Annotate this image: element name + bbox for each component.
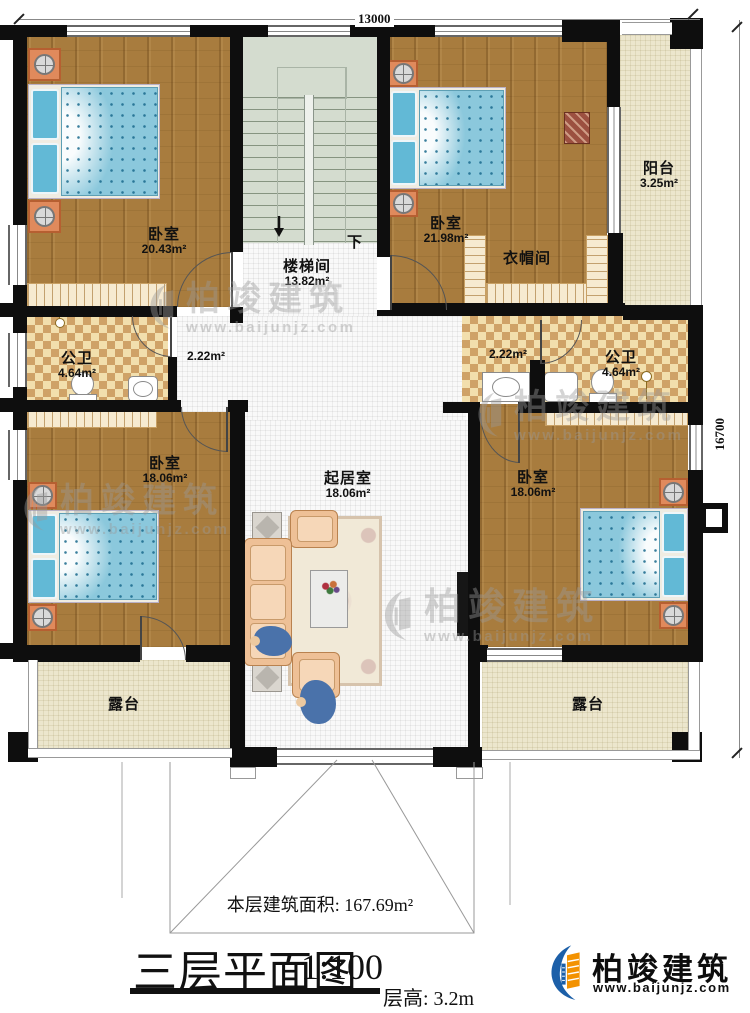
title-underline (130, 988, 380, 994)
label-stairwell: 楼梯间 13.82m² (283, 258, 331, 289)
label-living: 起居室 18.06m² (324, 470, 372, 501)
label-bedroom-bl: 卧室 18.06m² (143, 455, 188, 486)
label-balcony: 阳台 3.25m² (640, 160, 678, 191)
room-name: 起居室 (324, 470, 372, 487)
label-cloakroom: 衣帽间 (503, 250, 551, 267)
label-terrace-left: 露台 (108, 696, 140, 713)
label-bath-left: 公卫 4.64m² (58, 350, 96, 381)
room-name: 露台 (572, 696, 604, 713)
room-name: 卧室 (143, 455, 188, 472)
company-website: www.baijunjz.com (593, 980, 731, 995)
label-bedroom-tr: 卧室 21.98m² (424, 215, 469, 246)
stair-direction: 下 (347, 234, 363, 251)
room-name: 卧室 (424, 215, 469, 232)
dimension-right-label: 16700 (712, 415, 728, 454)
room-area: 4.64m² (58, 367, 96, 381)
room-area: 18.06m² (511, 486, 556, 500)
room-area: 4.64m² (602, 366, 640, 380)
floor-area-text: 本层建筑面积: 167.69m² (227, 891, 413, 917)
room-area: 20.43m² (142, 243, 187, 257)
label-bath-right: 公卫 4.64m² (602, 349, 640, 380)
porch-roof-outline (0, 0, 750, 1013)
label-bedroom-br: 卧室 18.06m² (511, 469, 556, 500)
label-bedroom-tl: 卧室 20.43m² (142, 226, 187, 257)
room-area: 21.98m² (424, 232, 469, 246)
room-name: 卧室 (142, 226, 187, 243)
room-name: 阳台 (640, 160, 678, 177)
room-name: 公卫 (602, 349, 640, 366)
room-area: 2.22m² (187, 350, 225, 364)
dimension-top-label: 13000 (355, 11, 394, 27)
dimension-line-right (739, 20, 740, 758)
room-area: 2.22m² (489, 348, 527, 362)
company-logo-icon (546, 943, 588, 1001)
label-hall-right: 2.22m² (489, 348, 527, 362)
floor-height-text: 层高: 3.2m (383, 982, 474, 1011)
room-name: 楼梯间 (283, 258, 331, 275)
room-area: 3.25m² (640, 177, 678, 191)
floor-plan-canvas: 13000 16700 卧室 20.43m² 楼梯间 13.82m² 下 卧室 … (0, 0, 750, 1013)
label-hall-left: 2.22m² (187, 350, 225, 364)
room-area: 18.06m² (324, 487, 372, 501)
label-stair-down: 下 (347, 234, 363, 251)
room-area: 18.06m² (143, 472, 188, 486)
plan-scale: 1:100 (301, 946, 383, 988)
room-name: 卧室 (511, 469, 556, 486)
label-terrace-right: 露台 (572, 696, 604, 713)
room-area: 13.82m² (283, 275, 331, 289)
room-name: 露台 (108, 696, 140, 713)
room-name: 衣帽间 (503, 250, 551, 267)
room-name: 公卫 (58, 350, 96, 367)
